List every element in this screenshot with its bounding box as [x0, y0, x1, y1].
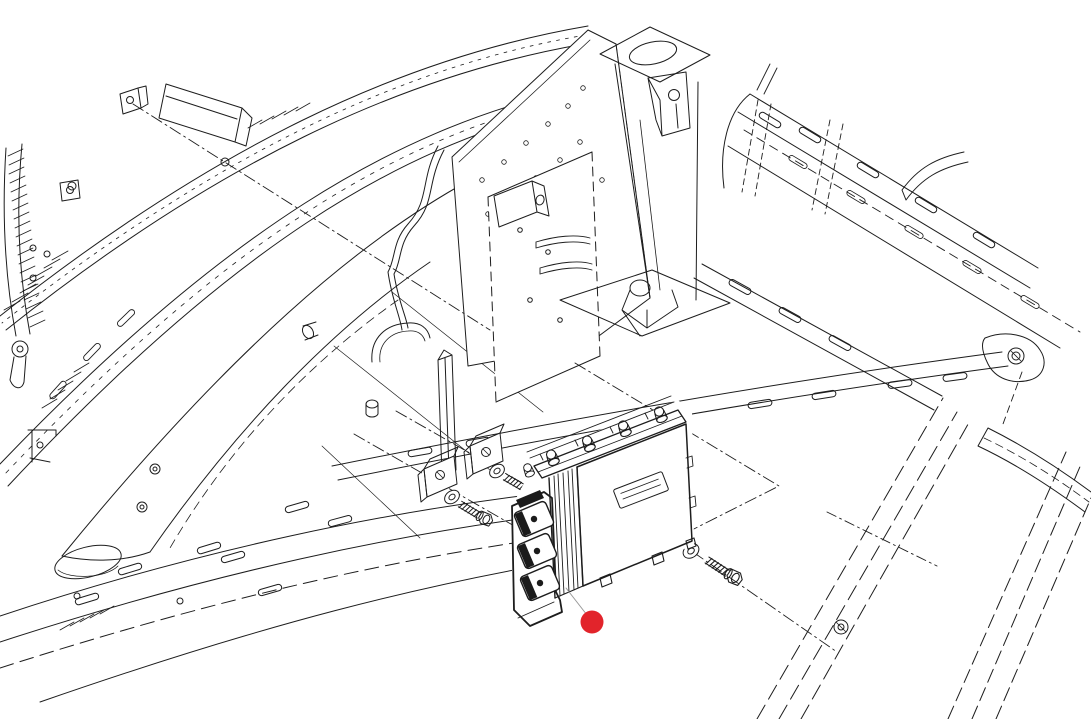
- clip-bracket-icon: [120, 86, 148, 114]
- control-module: [512, 396, 696, 626]
- chassis-line-art: [0, 26, 1091, 719]
- flat-washer-b: [442, 487, 462, 506]
- oval-cutout: [51, 539, 124, 585]
- base-rail: [694, 264, 942, 410]
- tower-side-bracket: [648, 72, 690, 136]
- diagram-canvas: [0, 0, 1091, 719]
- angled-plate: [159, 84, 252, 146]
- weatherstrip-seal: [4, 144, 45, 388]
- lower-channel: [978, 428, 1091, 512]
- rail-end-bracket: [982, 334, 1044, 382]
- barrel-hinge-icon: [300, 322, 318, 341]
- harness-tube: [388, 146, 444, 330]
- part-callout-marker[interactable]: [581, 611, 604, 634]
- floor-clip-bracket: [28, 430, 56, 462]
- standoff-cylinder: [366, 400, 378, 417]
- right-frame-rail: [723, 64, 1091, 512]
- lower-right-frame-rails: [757, 398, 1091, 719]
- parts-diagram: [0, 0, 1091, 719]
- hex-bolt-c: [703, 554, 744, 588]
